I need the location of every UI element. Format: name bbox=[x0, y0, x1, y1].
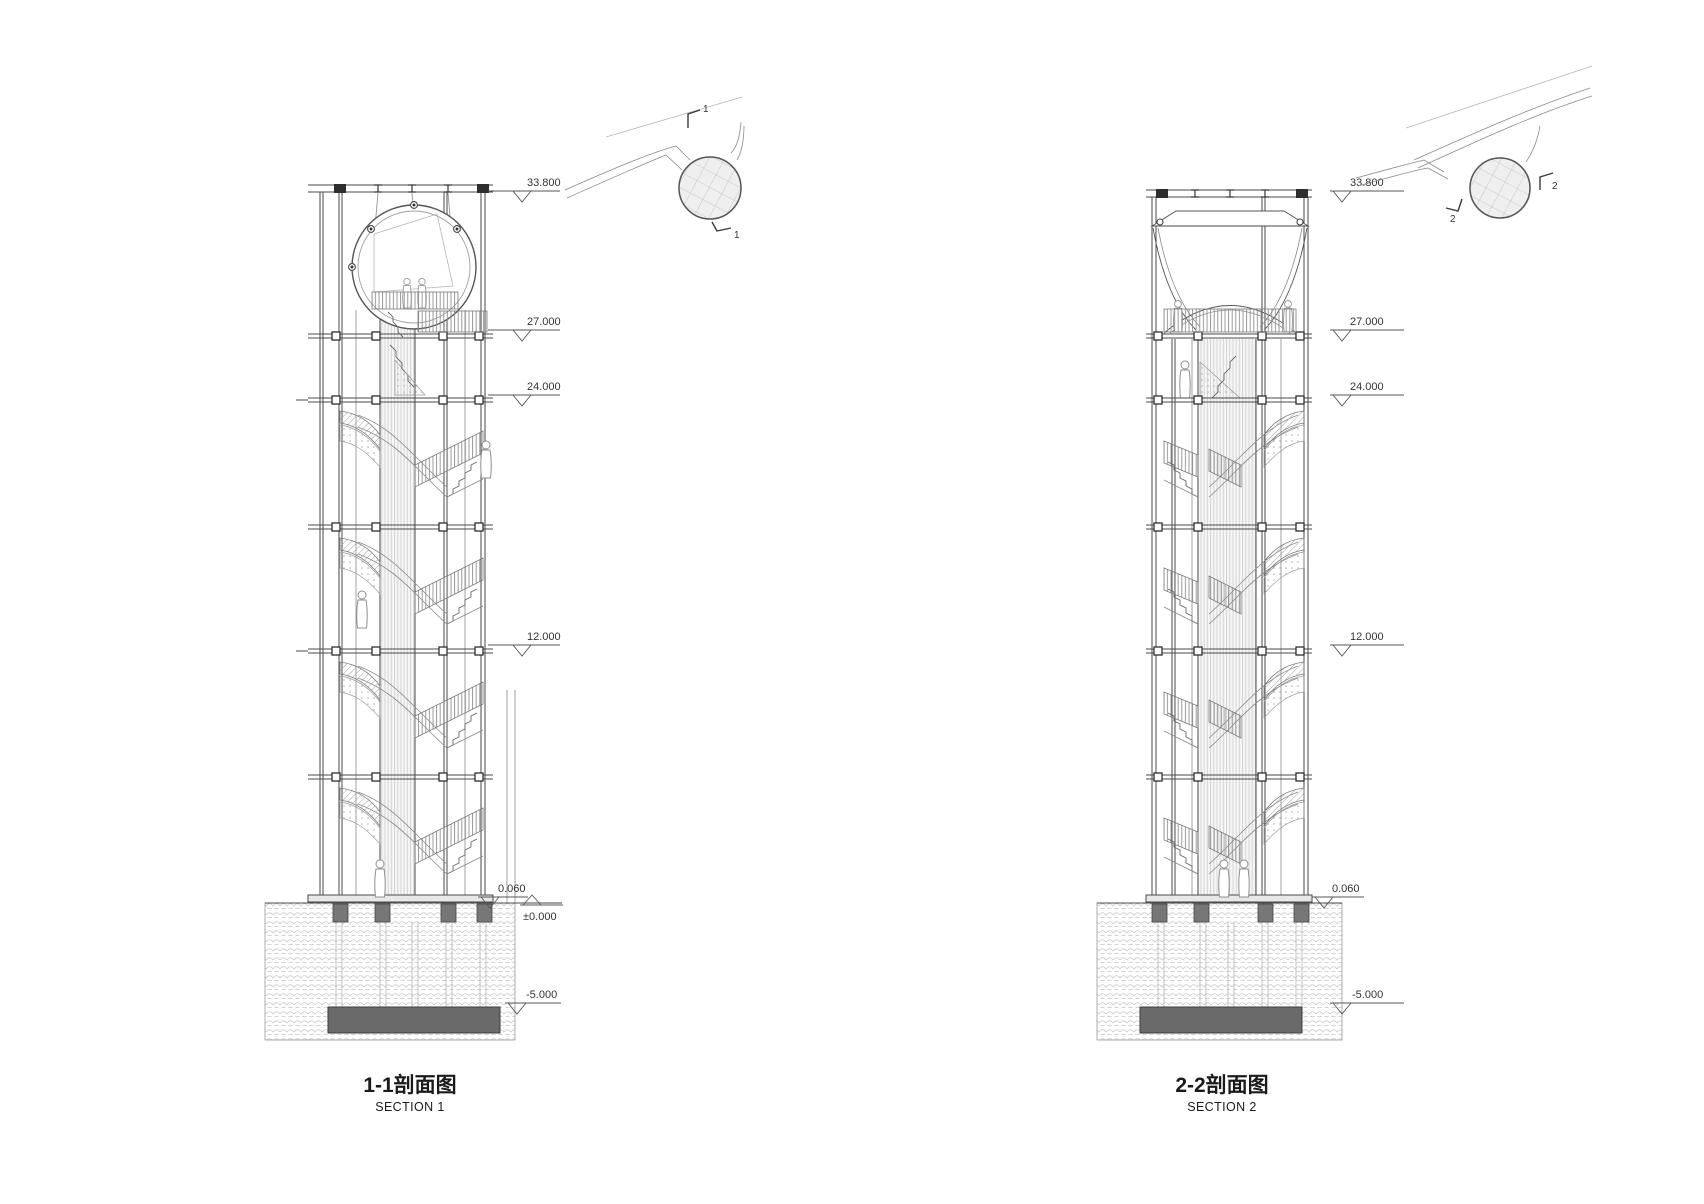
tower-section-1 bbox=[296, 184, 515, 903]
elevation-label: 24.000 bbox=[527, 381, 561, 393]
section-cut-mark-bottom: 1 bbox=[712, 222, 740, 241]
foundation-left bbox=[265, 903, 562, 1040]
elevation-marker: ±0.000 bbox=[520, 895, 563, 923]
top-structure bbox=[1146, 189, 1312, 333]
person-figure bbox=[481, 441, 491, 478]
cut-number: 2 bbox=[1552, 181, 1558, 192]
elevation-label: -5.000 bbox=[1352, 989, 1383, 1001]
cut-number: 2 bbox=[1450, 214, 1456, 225]
elevation-label: 33.800 bbox=[1350, 177, 1384, 189]
person-figure bbox=[1180, 361, 1190, 398]
person-figure bbox=[1239, 860, 1249, 897]
cut-number: 1 bbox=[703, 104, 709, 115]
key-plan-1: 1 1 bbox=[565, 97, 744, 241]
footing-slab bbox=[1140, 1007, 1302, 1033]
deck-railing bbox=[418, 311, 487, 332]
person-figure bbox=[1219, 860, 1229, 897]
person-figure bbox=[357, 591, 367, 628]
elevation-label: 27.000 bbox=[527, 316, 561, 328]
elevation-marker: 33.800 bbox=[488, 177, 561, 202]
architectural-sheet: 33.800 27.000 24.000 12.000 0.060 ±0.000… bbox=[0, 0, 1704, 1204]
elevation-label: 33.800 bbox=[527, 177, 561, 189]
elevation-label: ±0.000 bbox=[523, 911, 557, 923]
section-2-title-cn: 2-2剖面图 bbox=[1175, 1073, 1268, 1097]
section-cut-mark-left: 2 bbox=[1446, 199, 1462, 225]
section-1-title-en: SECTION 1 bbox=[375, 1100, 445, 1114]
elevation-label: -5.000 bbox=[526, 989, 557, 1001]
elevation-label: 24.000 bbox=[1350, 381, 1384, 393]
drawing-canvas: 33.800 27.000 24.000 12.000 0.060 ±0.000… bbox=[0, 0, 1704, 1204]
pod-railing bbox=[372, 292, 458, 309]
elevator-shaft bbox=[1198, 339, 1256, 897]
elevation-marker: 27.000 bbox=[488, 316, 561, 341]
deck-railing bbox=[1164, 309, 1296, 332]
elevation-markers-right: 33.800 27.000 24.000 12.000 0.060 -5.000 bbox=[1312, 177, 1404, 1014]
key-plan-2: 2 2 bbox=[1356, 66, 1592, 225]
elevation-label: 0.060 bbox=[1332, 883, 1360, 895]
section-cut-mark-right: 2 bbox=[1540, 173, 1558, 192]
elevation-label: 12.000 bbox=[527, 631, 561, 643]
cut-number: 1 bbox=[734, 230, 740, 241]
elevation-label: 0.060 bbox=[498, 883, 526, 895]
tower-plan-circle bbox=[1470, 158, 1530, 218]
elevation-marker: 12.000 bbox=[1330, 631, 1404, 656]
elevation-marker: 27.000 bbox=[1330, 316, 1404, 341]
elevation-label: 27.000 bbox=[1350, 316, 1384, 328]
footing-slab bbox=[328, 1007, 500, 1033]
section-1-title-cn: 1-1剖面图 bbox=[363, 1073, 456, 1097]
drawing-titles: 1-1剖面图 SECTION 1 2-2剖面图 SECTION 2 bbox=[363, 1073, 1268, 1114]
elevation-marker: 12.000 bbox=[488, 631, 561, 656]
elevation-marker: 24.000 bbox=[1330, 381, 1404, 406]
section-2-title-en: SECTION 2 bbox=[1187, 1100, 1257, 1114]
section-cut-mark-top: 1 bbox=[688, 104, 709, 128]
elevation-marker: 33.800 bbox=[1330, 177, 1404, 202]
elevation-marker: 24.000 bbox=[488, 381, 561, 406]
tower-plan-circle bbox=[679, 157, 741, 219]
elevation-markers-left: 33.800 27.000 24.000 12.000 0.060 ±0.000… bbox=[478, 177, 563, 1014]
tower-section-2 bbox=[1146, 189, 1312, 903]
elevation-label: 12.000 bbox=[1350, 631, 1384, 643]
foundation-right bbox=[1097, 903, 1342, 1040]
person-figure bbox=[375, 860, 385, 897]
